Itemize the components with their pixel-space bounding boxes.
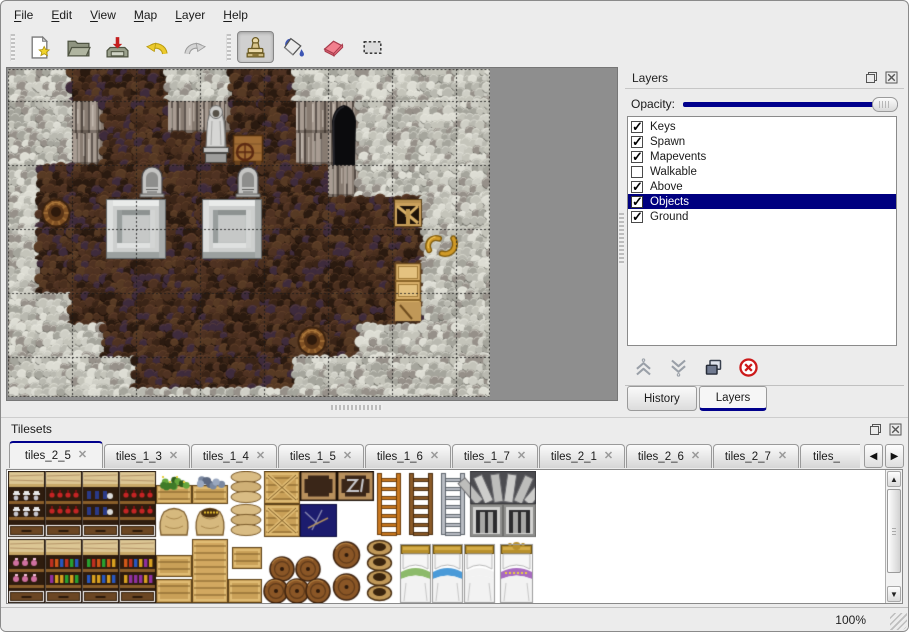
close-tab-icon[interactable]: ✕ [169, 451, 178, 462]
tilesets-panel-buttons [868, 422, 908, 436]
menu-map[interactable]: Map [125, 6, 166, 24]
tileset-splitter-handle[interactable] [331, 405, 383, 410]
layer-name: Objects [650, 196, 689, 208]
move-layer-down-button[interactable] [666, 355, 690, 379]
layer-list: ✓Keys✓Spawn✓MapeventsWalkable✓Above✓Obje… [627, 116, 897, 346]
select-tool-icon [360, 35, 385, 60]
dock-tabs: HistoryLayers [627, 386, 769, 411]
tileset-tab-tiles_2_6[interactable]: tiles_2_6✕ [626, 444, 712, 468]
close-tab-icon[interactable]: ✕ [778, 451, 787, 462]
tileset-content: ▲ ▼ [6, 469, 903, 604]
float-panel-icon [869, 423, 882, 436]
close-tab-icon[interactable]: ✕ [517, 451, 526, 462]
float-panel-icon [865, 71, 878, 84]
check-mark: ✓ [632, 149, 643, 165]
close-tab-icon[interactable]: ✕ [430, 451, 439, 462]
check-mark: ✓ [632, 209, 643, 225]
close-panel-icon [885, 71, 898, 84]
tileset-tab-label: tiles_2_7 [725, 451, 771, 463]
layer-row-ground[interactable]: ✓Ground [628, 209, 896, 224]
tileset-tab-label: tiles_1_7 [464, 451, 510, 463]
menu-layer[interactable]: Layer [166, 6, 214, 24]
new-file-button[interactable] [21, 31, 58, 63]
layer-name: Above [650, 181, 683, 193]
tab-scroll-right-button[interactable]: ▶ [885, 444, 904, 468]
tileset-scrollbar: ▲ ▼ [885, 470, 902, 603]
float-panel-button[interactable] [864, 71, 878, 85]
redo-icon [183, 35, 208, 60]
layer-visibility-checkbox[interactable]: ✓ [631, 151, 643, 163]
toolbar [1, 28, 908, 66]
close-tab-icon[interactable]: ✕ [604, 451, 613, 462]
eraser-tool-icon [321, 35, 346, 60]
layer-name: Spawn [650, 136, 685, 148]
close-tab-icon[interactable]: ✕ [256, 451, 265, 462]
duplicate-layer-button[interactable] [701, 355, 725, 379]
layer-visibility-checkbox[interactable]: ✓ [631, 196, 643, 208]
layers-panel-title: Layers [625, 71, 668, 85]
close-tab-icon[interactable]: ✕ [78, 450, 87, 461]
layer-row-spawn[interactable]: ✓Spawn [628, 134, 896, 149]
check-mark: ✓ [632, 194, 643, 210]
tileset-canvas[interactable] [8, 471, 536, 603]
layer-name: Keys [650, 121, 676, 133]
duplicate-layer-icon [703, 357, 724, 378]
select-tool-button[interactable] [354, 31, 391, 63]
layer-visibility-checkbox[interactable]: ✓ [631, 121, 643, 133]
tab-scroll-left-button[interactable]: ◀ [864, 444, 883, 468]
tileset-tab-tiles_2_7[interactable]: tiles_2_7✕ [713, 444, 799, 468]
check-mark: ✓ [632, 179, 643, 195]
delete-layer-icon [738, 357, 759, 378]
layer-visibility-checkbox[interactable] [631, 166, 643, 178]
tileset-tab-label: tiles_ [813, 451, 840, 463]
tileset-tab-label: tiles_2_6 [638, 451, 684, 463]
delete-layer-button[interactable] [736, 355, 760, 379]
tileset-tab-label: tiles_2_1 [551, 451, 597, 463]
close-tab-icon[interactable]: ✕ [691, 451, 700, 462]
stamp-tool-icon [243, 35, 268, 60]
layer-row-mapevents[interactable]: ✓Mapevents [628, 149, 896, 164]
menu-help[interactable]: Help [214, 6, 257, 24]
tileset-tab-label: tiles_2_5 [25, 450, 71, 462]
toolbar-gripper[interactable] [226, 34, 231, 61]
dock-splitter-handle[interactable] [619, 213, 624, 265]
window-resize-grip[interactable] [890, 613, 907, 630]
tileset-tab-scroll: ◀▶ [864, 444, 904, 468]
opacity-slider[interactable] [683, 95, 898, 113]
toolbar-gripper[interactable] [10, 34, 15, 61]
map-canvas[interactable] [8, 69, 490, 397]
tileset-tab-label: tiles_1_4 [203, 451, 249, 463]
save-button[interactable] [99, 31, 136, 63]
tileset-tab-label: tiles_1_3 [116, 451, 162, 463]
tileset-tab-tiles[interactable]: tiles_ [800, 444, 860, 468]
map-editor-window: FileEditViewMapLayerHelp Layers Opacity:… [0, 0, 909, 632]
eraser-tool-button[interactable] [315, 31, 352, 63]
dock-tab-layers[interactable]: Layers [699, 386, 768, 411]
move-layer-up-icon [633, 357, 654, 378]
tileset-tabs: tiles_2_5✕tiles_1_3✕tiles_1_4✕tiles_1_5✕… [9, 441, 860, 468]
layer-visibility-checkbox[interactable]: ✓ [631, 181, 643, 193]
close-panel-icon [889, 423, 902, 436]
layer-row-walkable[interactable]: Walkable [628, 164, 896, 179]
fill-tool-icon [282, 35, 307, 60]
layer-action-buttons [631, 353, 760, 381]
move-layer-up-button[interactable] [631, 355, 655, 379]
float-panel-button[interactable] [868, 422, 882, 436]
close-tab-icon[interactable]: ✕ [343, 451, 352, 462]
layers-panel-titlebar: Layers [625, 67, 904, 89]
layers-dock: Layers Opacity: ✓Keys✓Spawn✓MapeventsWal… [625, 67, 904, 413]
opacity-row: Opacity: [631, 94, 898, 114]
layer-visibility-checkbox[interactable]: ✓ [631, 136, 643, 148]
menu-edit[interactable]: Edit [42, 6, 81, 24]
tilesets-title: Tilesets [1, 422, 52, 436]
scroll-up-button[interactable]: ▲ [887, 471, 901, 487]
layer-row-objects[interactable]: ✓Objects [628, 194, 896, 209]
layer-row-keys[interactable]: ✓Keys [628, 119, 896, 134]
tileset-tab-tiles_2_1[interactable]: tiles_2_1✕ [539, 444, 625, 468]
layer-visibility-checkbox[interactable]: ✓ [631, 211, 643, 223]
tileset-tab-label: tiles_1_6 [377, 451, 423, 463]
layer-name: Mapevents [650, 151, 706, 163]
tileset-tab-tiles_2_5[interactable]: tiles_2_5✕ [9, 441, 103, 468]
redo-button[interactable] [177, 31, 214, 63]
stamp-tool-button[interactable] [237, 31, 274, 63]
close-panel-button[interactable] [884, 71, 898, 85]
new-file-icon [27, 35, 52, 60]
map-view-container [6, 67, 618, 401]
menu-file[interactable]: File [5, 6, 42, 24]
tileset-tab-label: tiles_1_5 [290, 451, 336, 463]
open-folder-icon [66, 35, 91, 60]
layer-name: Walkable [650, 166, 697, 178]
open-folder-button[interactable] [60, 31, 97, 63]
save-icon [105, 35, 130, 60]
layer-row-above[interactable]: ✓Above [628, 179, 896, 194]
scroll-down-button[interactable]: ▼ [887, 586, 901, 602]
check-mark: ✓ [632, 134, 643, 150]
opacity-label: Opacity: [631, 97, 675, 111]
layer-name: Ground [650, 211, 688, 223]
tileset-tab-tiles_1_5[interactable]: tiles_1_5✕ [278, 444, 364, 468]
undo-button[interactable] [138, 31, 175, 63]
tileset-tab-tiles_1_3[interactable]: tiles_1_3✕ [104, 444, 190, 468]
opacity-slider-track [683, 102, 898, 107]
layers-panel-buttons [864, 71, 904, 85]
menu-bar: FileEditViewMapLayerHelp [5, 5, 257, 25]
dock-tab-history[interactable]: History [627, 386, 697, 411]
move-layer-down-icon [668, 357, 689, 378]
tileset-tab-tiles_1_4[interactable]: tiles_1_4✕ [191, 444, 277, 468]
menu-view[interactable]: View [81, 6, 125, 24]
tileset-tab-tiles_1_6[interactable]: tiles_1_6✕ [365, 444, 451, 468]
status-bar: 100% [1, 607, 908, 631]
tilesets-panel: Tilesets tiles_2_5✕tiles_1_3✕tiles_1_4✕t… [1, 417, 908, 608]
close-panel-button[interactable] [888, 422, 902, 436]
check-mark: ✓ [632, 119, 643, 135]
opacity-slider-handle[interactable] [872, 97, 898, 112]
tileset-tab-tiles_1_7[interactable]: tiles_1_7✕ [452, 444, 538, 468]
tilesets-titlebar: Tilesets [1, 418, 908, 440]
undo-icon [144, 35, 169, 60]
scrollbar-thumb[interactable] [887, 489, 901, 573]
fill-tool-button[interactable] [276, 31, 313, 63]
